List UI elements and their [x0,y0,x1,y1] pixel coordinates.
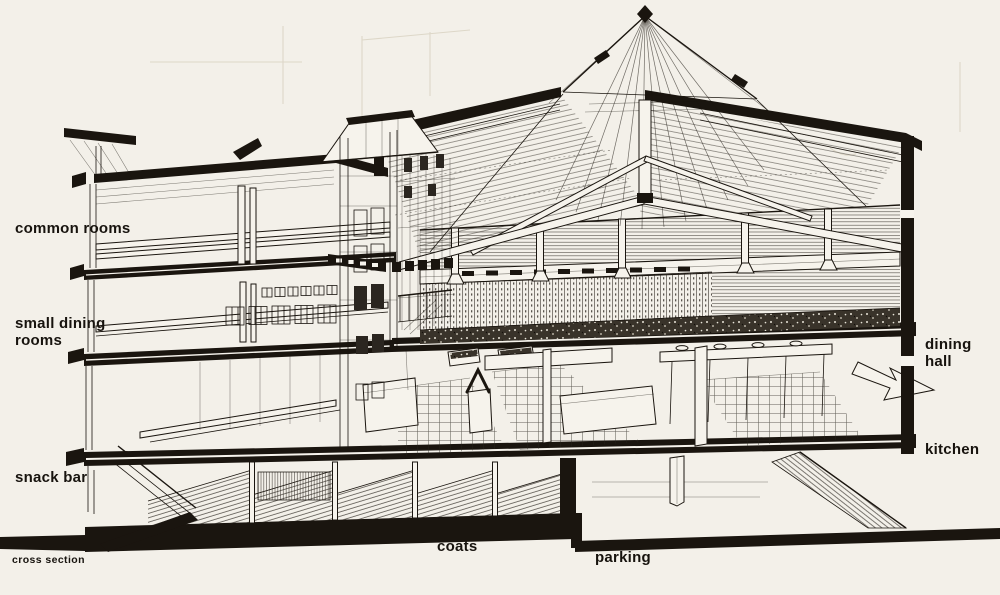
label-common-rooms: common rooms [15,221,131,238]
label-kitchen: kitchen [925,442,979,459]
label-dining-hall: dining hall [925,337,1000,370]
cross-section-figure: common rooms small dining rooms snack ba… [0,0,1000,595]
label-parking: parking [595,550,651,567]
kitchen-level [363,341,934,456]
section-drawing [0,0,1000,595]
label-small-dining-rooms: small dining rooms [15,316,119,349]
label-cross-section: cross section [12,555,85,567]
label-coats: coats [437,539,477,556]
window-row-upper [262,286,337,298]
label-snack-bar: snack bar [15,470,87,487]
hall-right-wall [901,136,914,454]
